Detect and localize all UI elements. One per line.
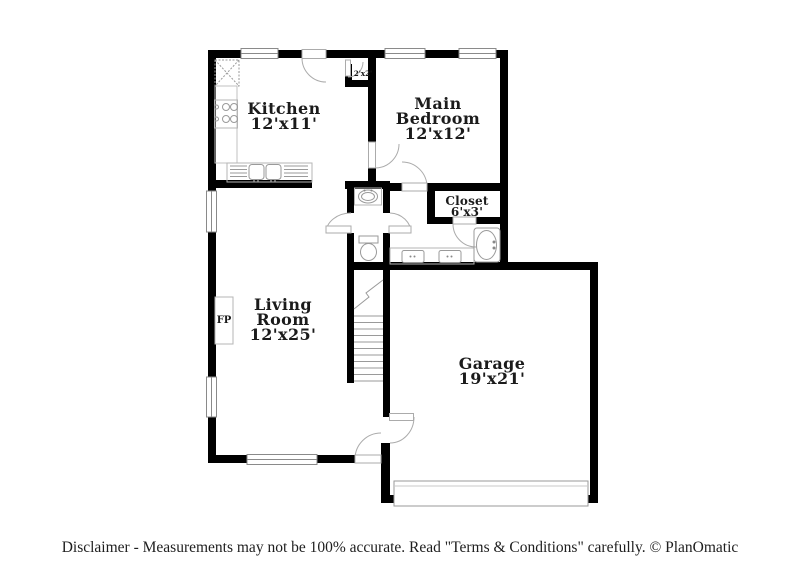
room-dims: 12'x25': [237, 327, 329, 342]
stair-break-line: [354, 280, 383, 309]
room-dims: 12'x11': [224, 116, 344, 131]
closet-door: [453, 217, 476, 247]
entry-door: [302, 50, 326, 83]
window: [459, 49, 496, 59]
window: [207, 191, 217, 232]
room-name: Main Bedroom: [382, 96, 494, 126]
disclaimer-text: Disclaimer - Measurements may not be 100…: [0, 539, 800, 557]
wall: [590, 262, 598, 503]
entry-closet-dims-label: 2'x2': [350, 71, 376, 78]
bedroom-bath-door: [402, 162, 427, 191]
wall: [347, 233, 354, 270]
window: [207, 377, 217, 417]
kitchen-sink: [227, 163, 312, 182]
room-label-main-bedroom: Main Bedroom 12'x12': [382, 96, 494, 142]
double-vanity: [390, 248, 474, 264]
bathroom-door: [389, 213, 411, 233]
room-label-living-room: Living Room 12'x25': [237, 297, 329, 343]
floorplan-page: { "page": { "background": "#ffffff", "wa…: [0, 0, 800, 582]
room-name: Living Room: [237, 297, 329, 327]
room-label-closet: Closet 6'x3': [427, 196, 507, 219]
wall: [390, 183, 402, 191]
powder-sink: [355, 188, 382, 205]
room-label-kitchen: Kitchen 12'x11': [224, 101, 344, 131]
wall: [383, 233, 390, 270]
wall: [208, 180, 312, 188]
floorplan-drawing: [0, 0, 800, 582]
wall: [427, 183, 500, 191]
staircase: [354, 280, 383, 381]
room-dims: 12'x12': [382, 126, 494, 141]
front-door: [355, 433, 381, 463]
bedroom-door: [369, 142, 400, 168]
room-dims: 6'x3': [427, 207, 507, 218]
wall: [347, 188, 354, 213]
garage-entry-door: [390, 414, 415, 444]
wall: [383, 270, 390, 417]
room-label-garage: Garage 19'x21': [427, 356, 557, 386]
fireplace-label: FP: [214, 316, 234, 326]
room-dims: 19'x21': [427, 371, 557, 386]
window: [247, 455, 317, 465]
window: [385, 49, 425, 59]
toilet: [359, 236, 378, 261]
wall: [347, 270, 354, 383]
wall: [383, 188, 390, 213]
toilet-room-door: [326, 213, 351, 233]
window: [241, 49, 278, 59]
refrigerator: [215, 60, 239, 86]
wall: [381, 443, 390, 503]
bathtub: [474, 228, 500, 262]
wall: [500, 50, 508, 270]
garage-door: [394, 481, 588, 506]
